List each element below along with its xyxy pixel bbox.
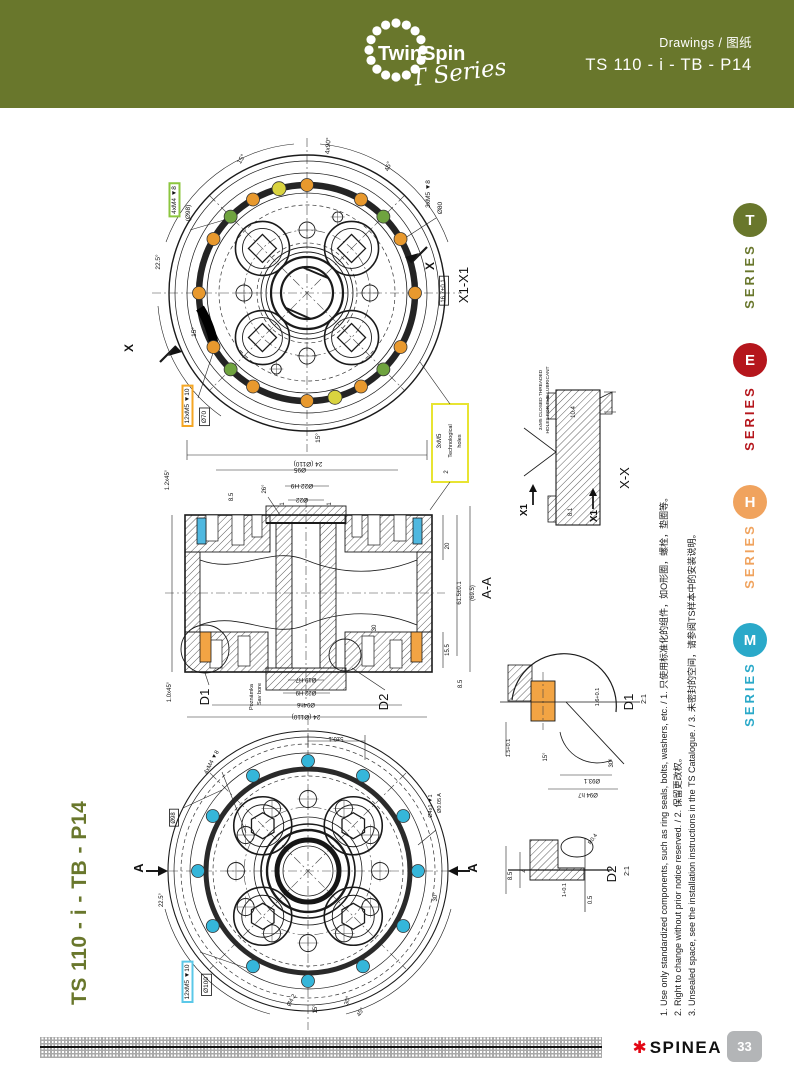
dwg-label: 2:1 [624,866,631,876]
svg-text:Technological: Technological [448,424,454,457]
dwg-label: holes [457,434,463,447]
dwg-label: 4xM4 ▼8 [170,183,180,216]
dwg-label: D2 [376,694,391,711]
dwg-label: 2:1 [641,694,648,704]
dwg-label: Ø95 [293,466,306,473]
dwg-label: 15° [235,152,247,165]
dwg-label: 0.5 [588,895,594,904]
svg-text:Ø4.2: Ø4.2 [286,993,298,1008]
dwg-label: 15° [314,433,322,443]
dwg-label: Ø22 [295,496,308,503]
dwg-label: 22.5° [159,892,165,907]
dwg-label: X1 [589,509,600,522]
svg-text:1: 1 [327,502,333,506]
bolt-marker [377,210,390,223]
bolt-marker [409,287,422,300]
dwg-label: Ø22 H9 [295,689,316,695]
dwg-label: D1 [621,694,636,711]
dwg-label: 4x90° [323,137,332,155]
seal-blue-left [197,518,206,544]
svg-text:1.6+0.1: 1.6+0.1 [595,688,601,707]
top-flange-view [152,138,468,510]
dwg-label: 10.4 [571,406,577,418]
bolt-marker [328,390,342,404]
svg-text:15°: 15° [313,1004,319,1014]
dwg-label: (Ø98) [185,205,192,222]
svg-text:A: A [131,863,146,873]
svg-text:D1: D1 [197,689,212,706]
dwg-label: 12xM5 ▼10 [183,386,193,426]
dwg-label: 16.7±0.1 [440,276,449,305]
bolt-marker [272,182,286,196]
detail-x-x [524,390,616,525]
svg-text:15°: 15° [190,327,198,337]
dwg-label: D1 [197,689,212,706]
bolt-hole-inner [242,895,284,937]
svg-text:1: 1 [280,502,286,506]
bolt-marker [302,975,315,988]
bolt-marker [247,960,260,973]
svg-text:45°: 45° [356,1007,366,1018]
dwg-label: 1.0x45° [167,681,173,702]
bolt-marker [357,769,370,782]
bolt-marker [206,810,219,823]
seal-blue-right [413,518,422,544]
dwg-label: Ø70 [200,408,210,426]
svg-text:X: X [423,262,437,270]
dwg-label: X [423,262,437,270]
seal-orange-right [411,632,422,662]
dwg-label: X1 [519,503,530,516]
svg-text:2:1: 2:1 [641,694,648,704]
bolt-marker [192,865,205,878]
svg-text:8.5: 8.5 [458,679,464,688]
dwg-label: 5±0.1 [328,735,344,741]
dwg-label: 30° [609,758,615,768]
svg-text:0.5: 0.5 [588,895,594,904]
dwg-label: 3xM5 [437,433,443,448]
dwg-label: 1.6+0.1 [595,688,601,707]
svg-text:26°: 26° [262,484,268,494]
svg-text:30°: 30° [609,758,615,768]
bolt-marker [247,193,260,206]
dwg-label: 26° [262,484,268,494]
dwg-label: 3xM5 ▼8 [425,180,432,208]
dwg-label: Ø80 [437,201,444,214]
dwg-label: 12xM5 ▼10 [183,962,193,1002]
svg-text:Ø22 H9: Ø22 H9 [290,482,313,489]
bolt-hole [324,887,382,945]
svg-text:D2: D2 [376,694,391,711]
bolt-marker [207,341,220,354]
svg-text:Poznámka: Poznámka [249,683,255,710]
svg-text:Ø4x1 ▼1: Ø4x1 ▼1 [428,794,434,817]
dwg-label: 20 [445,542,451,549]
dwg-label: 8.5 [229,492,235,501]
bolt-marker [224,363,237,376]
bolt-marker [412,865,425,878]
svg-text:1.2x45°: 1.2x45° [165,469,171,490]
svg-text:X: X [122,344,136,352]
section-a-a [165,470,470,717]
bolt-marker [206,920,219,933]
bolt-marker [394,233,407,246]
svg-text:R0.4: R0.4 [587,833,599,846]
svg-text:Ø94 h7: Ø94 h7 [577,791,597,797]
svg-text:Ø80: Ø80 [437,201,444,214]
svg-text:A: A [465,863,480,873]
svg-text:4: 4 [522,869,528,873]
svg-text:15°: 15° [235,152,247,165]
dwg-label: 1.2x45° [165,469,171,490]
svg-text:Ø22 H9: Ø22 H9 [295,689,316,695]
bolt-marker [301,395,314,408]
bolt-marker [394,341,407,354]
page-number-tab: 33 [727,1031,762,1062]
technical-drawing-canvas: 4xM4 ▼8(Ø98)12xM5 ▼10Ø703xM5 ▼8Ø80XXX1-X… [0,0,794,1077]
svg-text:3xM5 ▼8: 3xM5 ▼8 [425,180,432,208]
bolt-hole-inner [332,895,374,937]
svg-text:8.5: 8.5 [508,871,514,880]
dwg-label: A [131,863,146,873]
svg-text:Ø98: Ø98 [171,812,177,824]
dwg-label: (69.5) [470,585,476,601]
dwg-label: 61.5±0.1 [457,581,463,605]
dwg-label: X1-X1 [456,267,471,303]
svg-text:3xM5: 3xM5 [437,433,443,448]
spinea-gear-icon: ✱ [632,1039,646,1056]
bolt-marker [302,755,315,768]
bolt-marker [397,920,410,933]
bottom-flange-view [146,716,470,1030]
dwg-label: Technological [448,424,454,457]
dwg-label: 8.5 [458,679,464,688]
dwg-label: X-X [617,467,632,489]
catalogue-page: TwinSpin T Series Drawings / 图纸 TS 110 -… [0,0,794,1077]
dwg-label: 2 [444,470,450,474]
spinea-logo: ✱ SPINEA [602,1035,722,1060]
svg-text:20: 20 [445,542,451,549]
svg-text:X1: X1 [589,509,600,522]
svg-text:61.5±0.1: 61.5±0.1 [457,581,463,605]
bolt-marker [193,287,206,300]
dwg-label: Ø94h6 [296,701,315,707]
dwg-label: 8.1 [568,507,574,516]
dwg-label: HOLES FOR THE LUBRICANT [545,366,551,433]
svg-text:Ø70: Ø70 [201,410,208,423]
svg-text:1.5+0.1: 1.5+0.1 [506,739,512,758]
dwg-label: 24 (Ø110) [294,460,323,467]
svg-text:X-X: X-X [617,467,632,489]
svg-text:Ø22: Ø22 [295,496,308,503]
dwg-label: Ø93.1 [583,777,600,783]
bolt-hole [325,311,379,365]
bolt-marker [357,960,370,973]
bolt-marker [355,193,368,206]
svg-text:D1: D1 [621,694,636,711]
dwg-label: 15° [190,327,198,337]
dwg-label: Ø19 H7 [295,676,316,682]
svg-text:Ø93.1: Ø93.1 [583,777,600,783]
svg-text:8.1: 8.1 [568,507,574,516]
dwg-label: 1 [280,502,286,506]
seal-orange-left [200,632,211,662]
svg-text:2: 2 [444,470,450,474]
bolt-marker [377,363,390,376]
bolt-hole [234,887,292,945]
svg-text:Ø19 H7: Ø19 H7 [295,676,316,682]
dwg-label: R0.4 [587,833,599,846]
svg-text:10.4: 10.4 [571,406,577,418]
svg-text:12xM5 ▼10: 12xM5 ▼10 [184,388,191,423]
dwg-label: Poznámka [249,683,255,710]
svg-text:22.5°: 22.5° [154,254,162,270]
dwg-label: D2 [604,866,619,883]
dwg-label: 1.5+0.1 [506,739,512,758]
bolt-marker [247,380,260,393]
svg-text:8.5: 8.5 [229,492,235,501]
bolt-marker [247,769,260,782]
bolt-marker [301,179,314,192]
dwg-label: 3xM5 CLOSED THREADED [538,369,544,430]
dwg-label: Ø4.2 [286,993,298,1008]
bolt-marker [355,380,368,393]
dwg-label: 45° [356,1007,366,1018]
detail-d1 [500,654,640,789]
svg-text:(Ø98): (Ø98) [185,205,192,222]
svg-text:24 (Ø110): 24 (Ø110) [292,713,321,720]
dwg-label: X [122,344,136,352]
svg-text:Ø100: Ø100 [203,977,210,993]
dwg-label: 22.5° [154,254,162,270]
dwg-label: 15° [313,1004,319,1014]
svg-text:Ø95: Ø95 [293,466,306,473]
dwg-label: Ø100 [202,974,212,995]
svg-text:15°: 15° [314,433,322,443]
svg-text:(69.5): (69.5) [470,585,476,601]
dwg-label: Sav bore [257,683,263,705]
svg-text:Ø94h6: Ø94h6 [296,701,315,707]
dwg-label: 4 [522,869,528,873]
dwg-label: A [465,863,480,873]
svg-text:30: 30 [372,624,378,631]
svg-text:16.7±0.1: 16.7±0.1 [441,279,447,303]
svg-text:1+0.1: 1+0.1 [562,883,568,897]
dwg-label: Ø22 H9 [290,482,313,489]
spinea-brand-name: SPINEA [650,1038,722,1058]
dwg-label: 8.5 [508,871,514,880]
svg-text:1.0x45°: 1.0x45° [167,681,173,702]
dwg-label: 24 (Ø110) [292,713,321,720]
dwg-label: 15.5 [445,644,451,656]
svg-text:3xM5 CLOSED THREADED: 3xM5 CLOSED THREADED [538,369,544,430]
dwg-label: Ø98 [170,809,179,826]
dwg-label: Ø4x1 ▼1 [428,794,434,817]
dwg-label: Ø94 h7 [577,791,597,797]
svg-text:2:1: 2:1 [624,866,631,876]
svg-text:X1: X1 [519,503,530,516]
svg-text:12xM5 ▼10: 12xM5 ▼10 [184,964,191,999]
svg-text:24 (Ø110): 24 (Ø110) [294,460,323,467]
svg-text:30°: 30° [433,892,439,902]
svg-text:Ø0.05 A: Ø0.05 A [437,793,443,813]
dwg-label: 15° [543,752,549,762]
bolt-marker [224,210,237,223]
svg-text:5±0.1: 5±0.1 [328,735,344,741]
bolt-marker [207,233,220,246]
svg-text:45°: 45° [383,160,394,172]
svg-text:X1-X1: X1-X1 [456,267,471,303]
svg-text:A-A: A-A [479,577,494,599]
svg-text:D2: D2 [604,866,619,883]
dwg-label: 30° [433,892,439,902]
svg-text:HOLES FOR THE LUBRICANT: HOLES FOR THE LUBRICANT [545,366,551,433]
dwg-label: A-A [479,577,494,599]
svg-text:15.5: 15.5 [445,644,451,656]
bolt-marker [397,810,410,823]
svg-text:22.5°: 22.5° [159,892,165,907]
svg-text:4xM4 ▼8: 4xM4 ▼8 [171,186,178,214]
dwg-label: 1+0.1 [562,883,568,897]
svg-text:holes: holes [457,434,463,447]
svg-text:4x90°: 4x90° [323,137,332,155]
dwg-label: 45° [383,160,394,172]
dwg-label: 30 [372,624,378,631]
detail-d2 [506,837,612,912]
dwg-label: 1 [327,502,333,506]
dwg-label: Ø0.05 A [437,793,443,813]
svg-text:15°: 15° [543,752,549,762]
svg-text:Sav bore: Sav bore [257,683,263,705]
